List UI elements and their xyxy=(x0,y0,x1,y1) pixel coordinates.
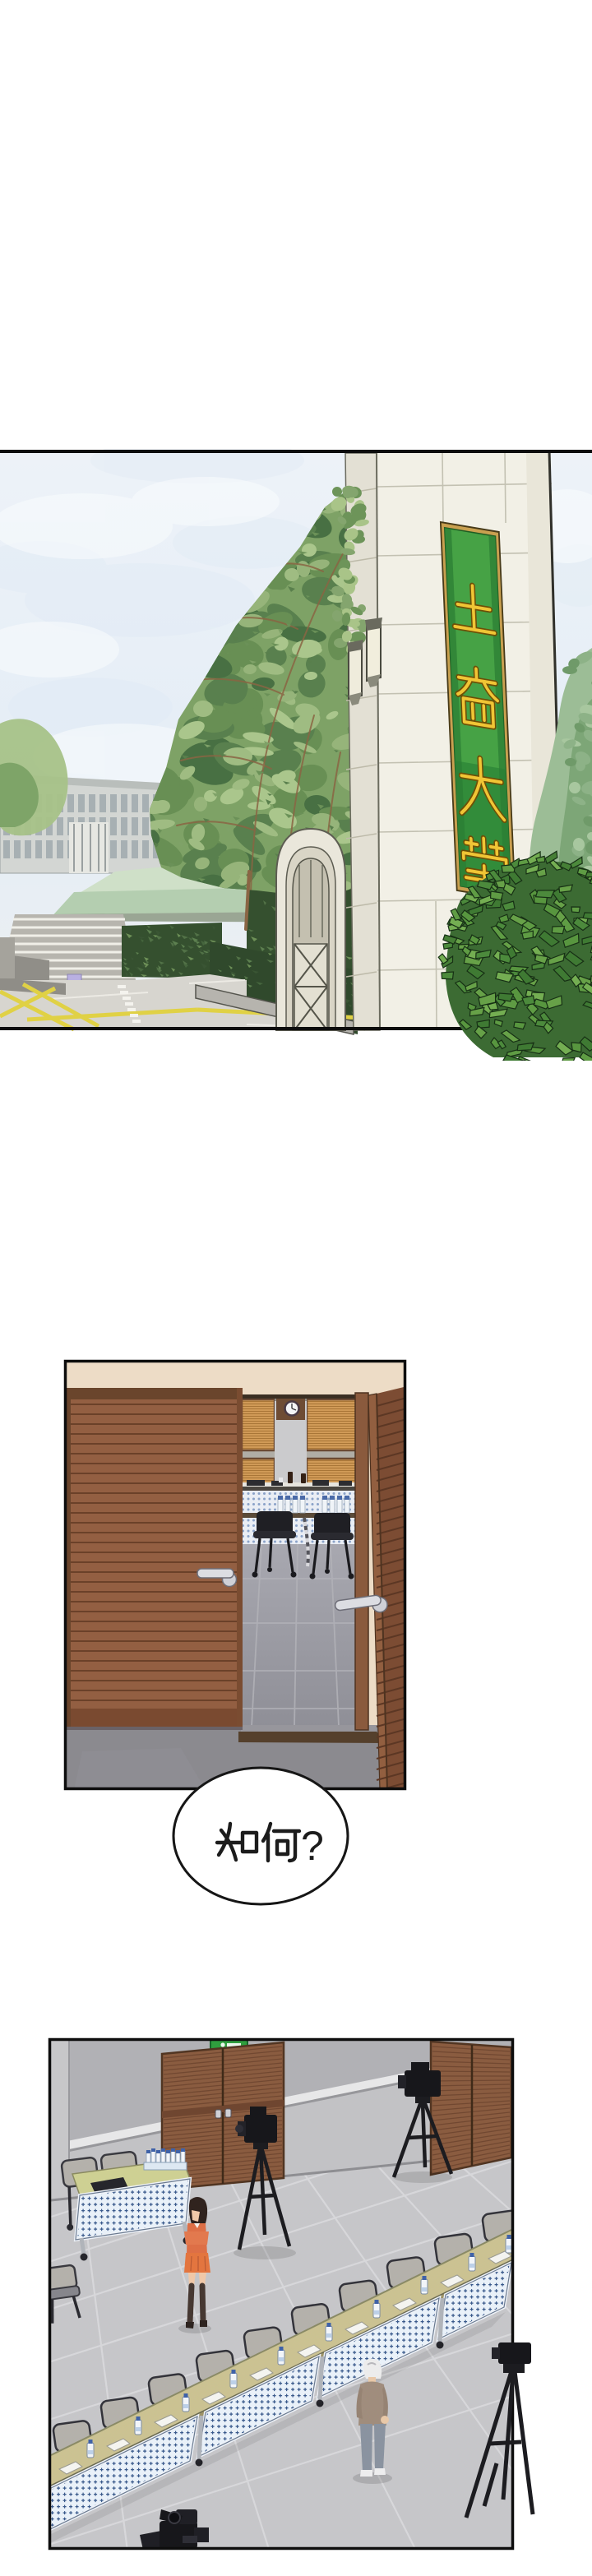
svg-text:?: ? xyxy=(301,1823,324,1869)
